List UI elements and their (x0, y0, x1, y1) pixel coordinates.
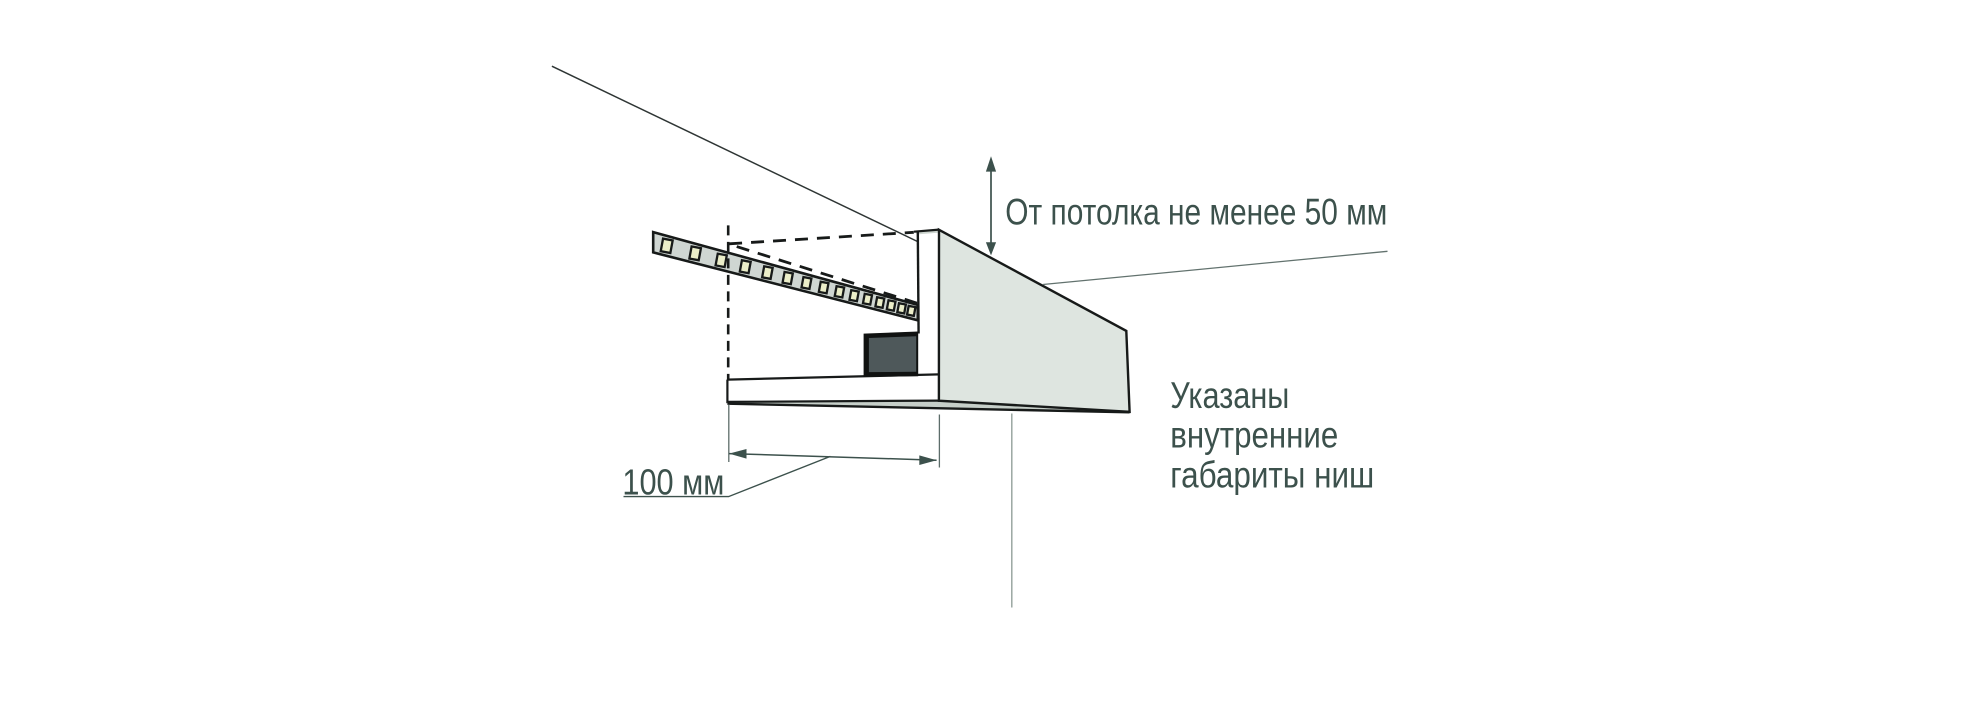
svg-text:От потолка не менее 50 мм: От потолка не менее 50 мм (1005, 192, 1387, 233)
svg-text:100 мм: 100 мм (622, 461, 724, 502)
svg-text:габариты ниш: габариты ниш (1170, 453, 1374, 495)
svg-text:Указаны: Указаны (1170, 374, 1289, 416)
svg-text:внутренние: внутренние (1170, 414, 1338, 456)
